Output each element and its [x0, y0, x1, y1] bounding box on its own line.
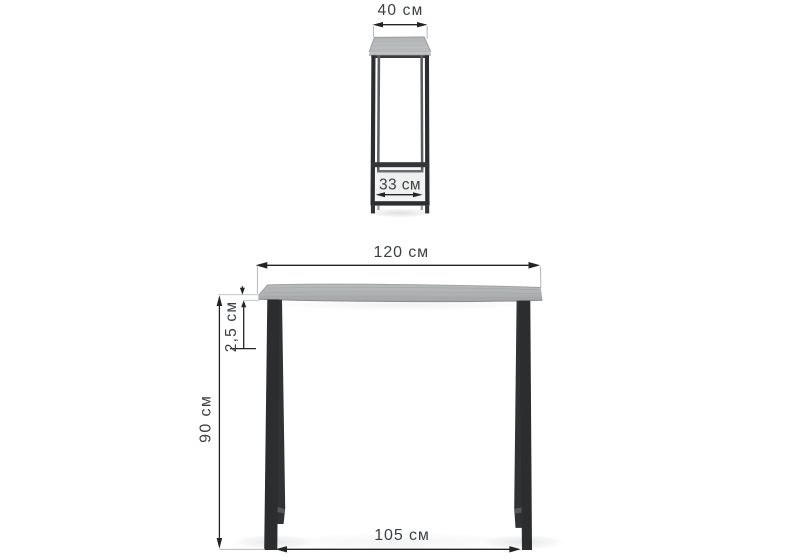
svg-text:2,5 см: 2,5 см	[223, 301, 240, 352]
svg-text:90 см: 90 см	[198, 395, 215, 443]
svg-text:105 см: 105 см	[374, 527, 430, 544]
svg-text:33 см: 33 см	[379, 176, 421, 193]
svg-text:120 см: 120 см	[374, 244, 430, 261]
svg-text:40 см: 40 см	[378, 2, 424, 19]
